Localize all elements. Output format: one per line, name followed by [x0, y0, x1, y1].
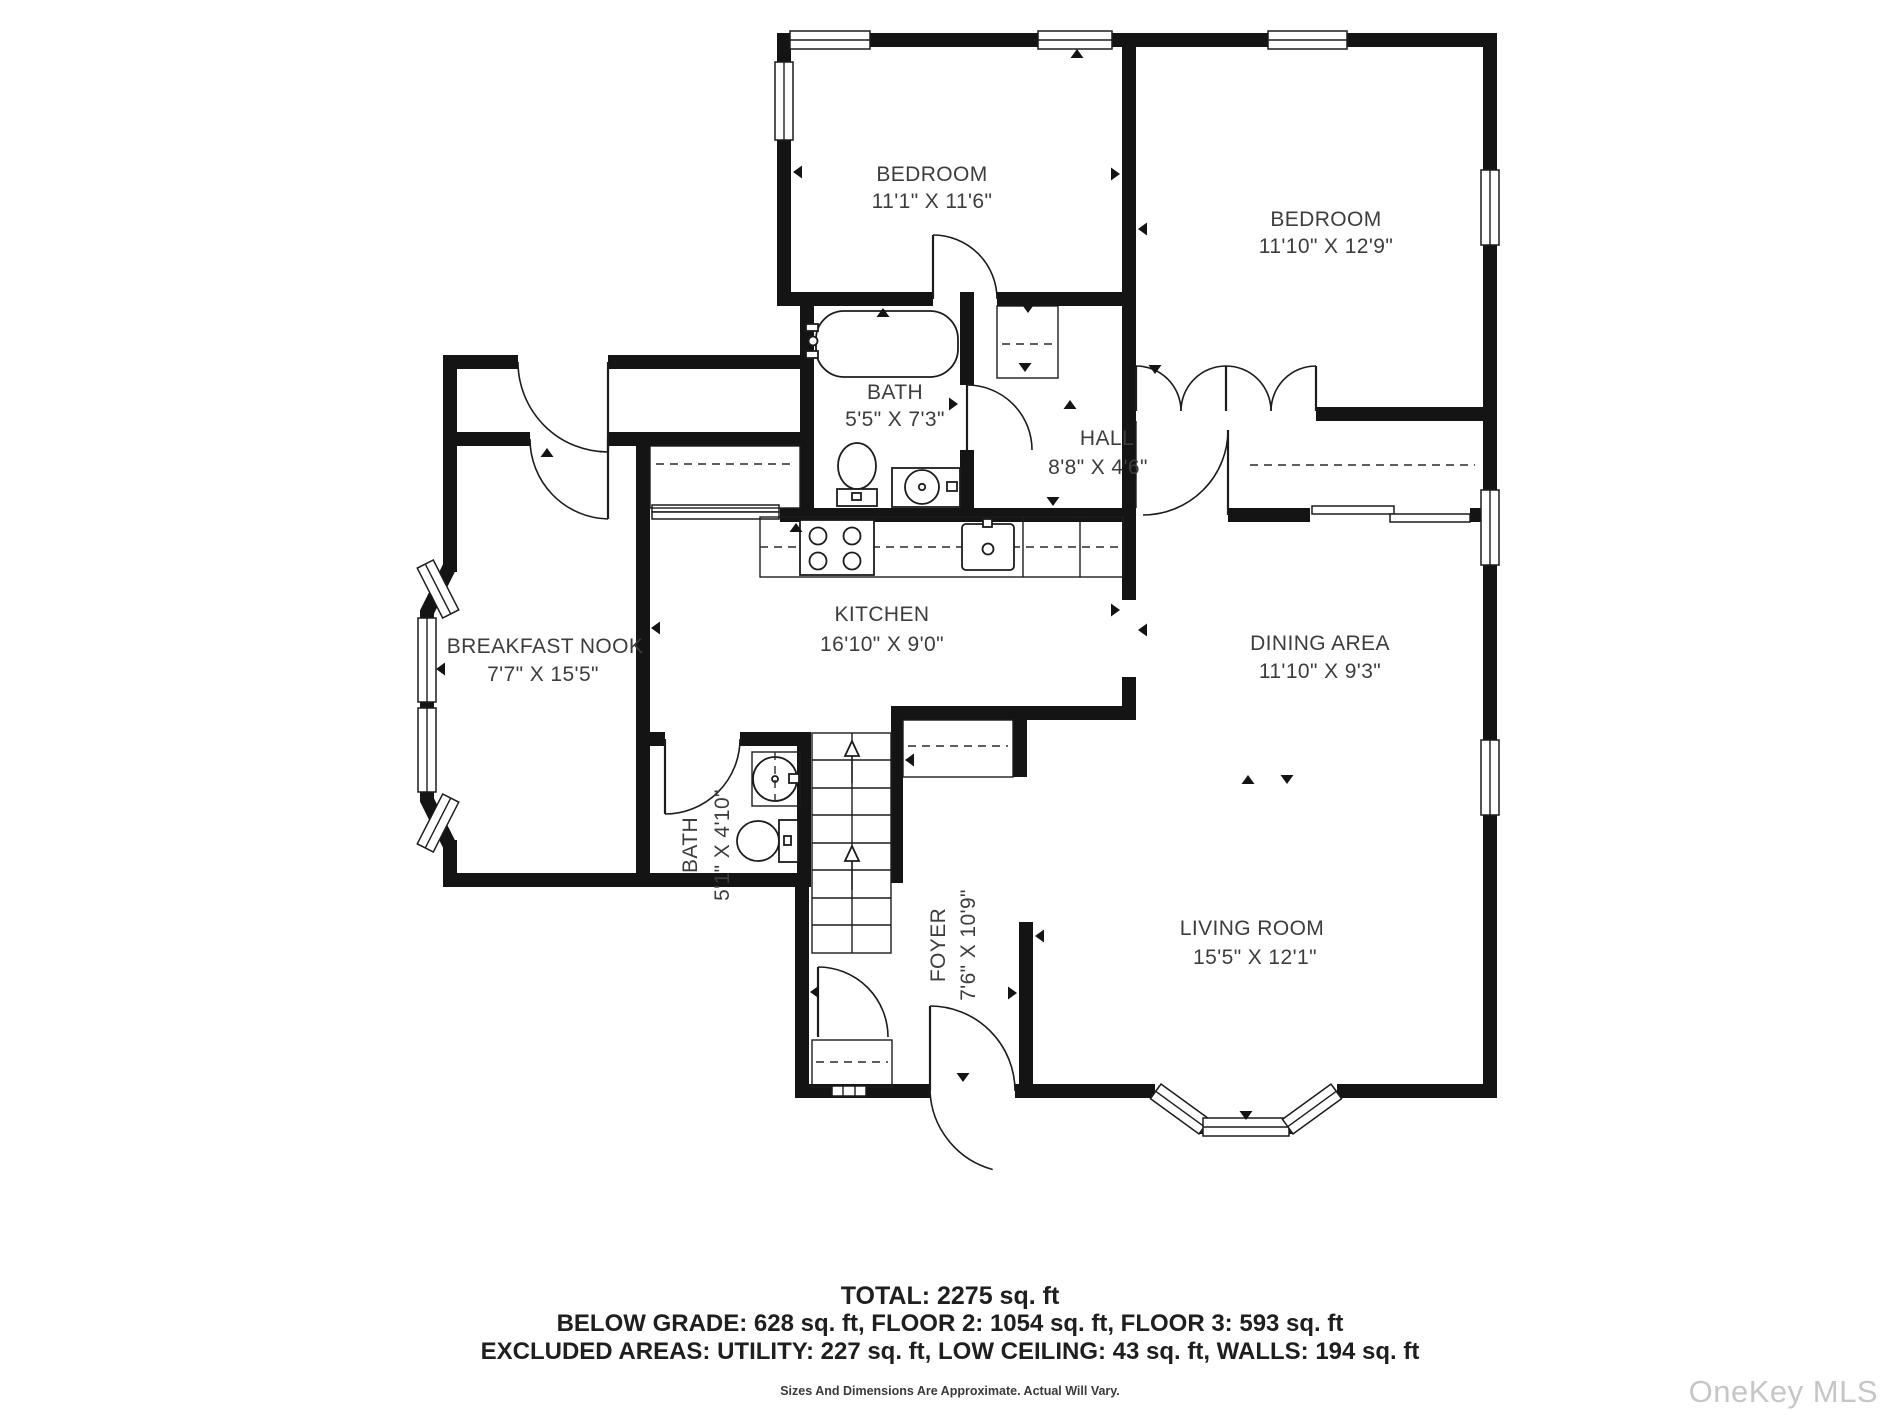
foyer-closet-door	[818, 967, 888, 1037]
label-hall: HALL	[1080, 427, 1134, 450]
dims-living: 15'5" X 12'1"	[1193, 946, 1317, 969]
doors	[518, 235, 1470, 1169]
dimension-arrows	[436, 49, 1294, 1120]
excluded-areas-text: EXCLUDED AREAS: UTILITY: 227 sq. ft, LOW…	[0, 1338, 1900, 1366]
label-bath2: BATH	[679, 817, 702, 873]
label-breakfast-nook: BREAKFAST NOOK	[447, 635, 644, 658]
staircase	[812, 733, 891, 953]
floorplan-drawing: BEDROOM 11'1" X 11'6" BEDROOM 11'10" X 1…	[0, 0, 1900, 1425]
stairs-up-arrow-2	[845, 846, 859, 890]
dims-dining: 11'10" X 9'3"	[1259, 660, 1381, 683]
toilet-bath1	[837, 443, 877, 506]
floorplan-page: { "rooms": [ {"name":"BEDROOM","dims":"1…	[0, 0, 1900, 1425]
floor-areas-text: BELOW GRADE: 628 sq. ft, FLOOR 2: 1054 s…	[0, 1310, 1900, 1338]
window-bedroom2-top	[1268, 31, 1347, 49]
label-foyer: FOYER	[927, 908, 950, 982]
label-bath1: BATH	[867, 381, 923, 404]
bedroom2-long-closet	[1136, 421, 1475, 508]
vestibule-closet	[650, 446, 800, 508]
foyer-top-closet	[903, 720, 1013, 777]
kitchen-counter	[760, 517, 1123, 577]
dims-bedroom1: 11'1" X 11'6"	[872, 190, 993, 213]
stairs-up-arrow-1	[845, 741, 859, 783]
toilet-bath2	[737, 820, 798, 862]
dims-hall: 8'8" X 4'6"	[1048, 456, 1148, 479]
window-living-right	[1481, 740, 1499, 815]
label-bedroom1: BEDROOM	[876, 163, 987, 186]
closets	[650, 306, 1475, 1096]
window-bay-nook-flat1	[418, 618, 436, 702]
stove	[800, 520, 874, 575]
dims-foyer: 7'6" X 10'9"	[957, 889, 980, 1001]
dims-kitchen: 16'10" X 9'0"	[820, 633, 944, 656]
foyer-bottom-closet	[812, 1040, 892, 1087]
window-bedroom1-left	[775, 62, 793, 140]
dims-breakfast-nook: 7'7" X 15'5"	[487, 663, 599, 686]
disclaimer-text: Sizes And Dimensions Are Approximate. Ac…	[0, 1384, 1900, 1398]
closet-sliding-door	[1312, 506, 1470, 522]
total-area-text: TOTAL: 2275 sq. ft	[0, 1282, 1900, 1311]
window-bay-living-right	[1282, 1084, 1341, 1134]
window-bedroom2-right	[1481, 170, 1499, 245]
sink-bath2	[752, 752, 800, 806]
window-bedroom1-top-right	[1038, 31, 1112, 49]
kitchen-sink	[962, 519, 1014, 570]
sink-bath1	[892, 468, 960, 507]
label-bedroom2: BEDROOM	[1270, 208, 1381, 231]
window-bay-nook-flat2	[418, 708, 436, 792]
hall-dining-door	[1143, 430, 1228, 515]
dims-bath1: 5'5" X 7'3"	[845, 408, 945, 431]
label-kitchen: KITCHEN	[835, 603, 930, 626]
window-bedroom1-top	[790, 31, 870, 49]
bath1-door	[967, 385, 1032, 450]
dims-bedroom2: 11'10" X 12'9"	[1259, 235, 1393, 258]
foyer-wall-vent	[832, 1086, 866, 1096]
window-bay-living-left	[1150, 1084, 1209, 1134]
dims-bath2: 5'1" X 4'10"	[711, 789, 734, 901]
window-dining-right	[1481, 490, 1499, 565]
side-entry-door	[518, 362, 608, 452]
bedroom1-door	[933, 235, 997, 299]
label-living: LIVING ROOM	[1180, 917, 1324, 940]
bedroom2-closet-doors	[1136, 366, 1316, 411]
window-bay-living-flat	[1203, 1118, 1289, 1136]
label-dining: DINING AREA	[1250, 632, 1390, 655]
onekey-mls-watermark: OneKey MLS	[1689, 1374, 1878, 1410]
bathtub	[806, 311, 958, 377]
front-entry-door	[920, 1006, 1015, 1169]
